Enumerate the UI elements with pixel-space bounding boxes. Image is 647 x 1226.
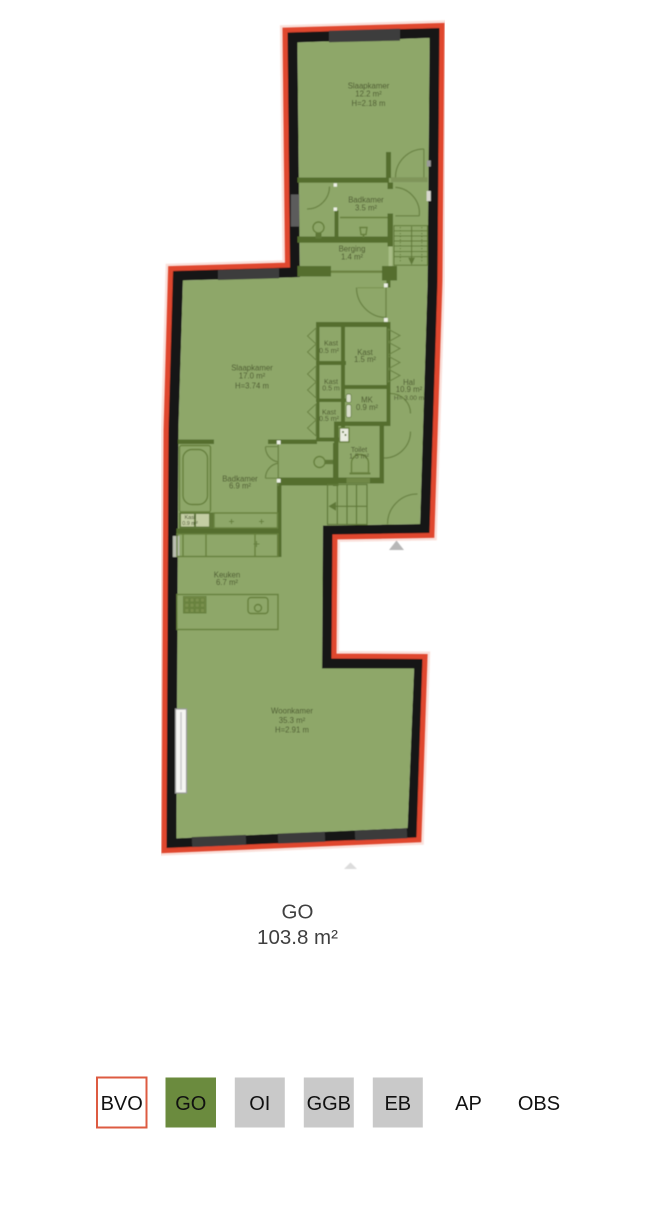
- svg-text:0.9 m²: 0.9 m²: [356, 403, 378, 412]
- svg-text:12.2 m²: 12.2 m²: [355, 89, 382, 98]
- svg-text:H=2.91 m: H=2.91 m: [275, 726, 309, 735]
- svg-text:EB: EB: [384, 1093, 411, 1115]
- svg-text:0.5 m²: 0.5 m²: [319, 348, 340, 355]
- svg-text:10.9 m²: 10.9 m²: [396, 385, 423, 394]
- svg-text:AP: AP: [455, 1093, 482, 1115]
- svg-text:Kast: Kast: [324, 341, 338, 348]
- svg-text:OI: OI: [249, 1093, 270, 1115]
- svg-text:0.9 m²: 0.9 m²: [182, 521, 198, 527]
- svg-text:GO: GO: [282, 901, 314, 924]
- svg-text:1.5 m²: 1.5 m²: [354, 355, 376, 364]
- svg-text:H=2.18 m: H=2.18 m: [351, 99, 385, 108]
- svg-text:6.9 m²: 6.9 m²: [229, 482, 251, 491]
- svg-text:OBS: OBS: [518, 1093, 560, 1115]
- svg-text:GGB: GGB: [307, 1093, 351, 1115]
- svg-text:0.5 m: 0.5 m: [322, 386, 340, 393]
- svg-text:Woonkamer: Woonkamer: [271, 707, 313, 716]
- svg-text:0.5 m²: 0.5 m²: [319, 416, 340, 423]
- svg-text:35.3 m²: 35.3 m²: [279, 716, 306, 725]
- svg-text:H=3.74 m: H=3.74 m: [235, 382, 269, 391]
- svg-text:103.8 m²: 103.8 m²: [257, 926, 338, 949]
- svg-text:6.7 m²: 6.7 m²: [216, 578, 238, 587]
- svg-text:1.4 m²: 1.4 m²: [341, 253, 363, 262]
- svg-text:H= 3.00 m: H= 3.00 m: [394, 395, 424, 402]
- svg-text:3.5 m²: 3.5 m²: [355, 204, 377, 213]
- svg-text:17.0 m²: 17.0 m²: [239, 372, 266, 381]
- svg-text:GO: GO: [175, 1093, 206, 1115]
- svg-text:BVO: BVO: [101, 1093, 143, 1115]
- svg-text:1.5 m²: 1.5 m²: [349, 454, 370, 461]
